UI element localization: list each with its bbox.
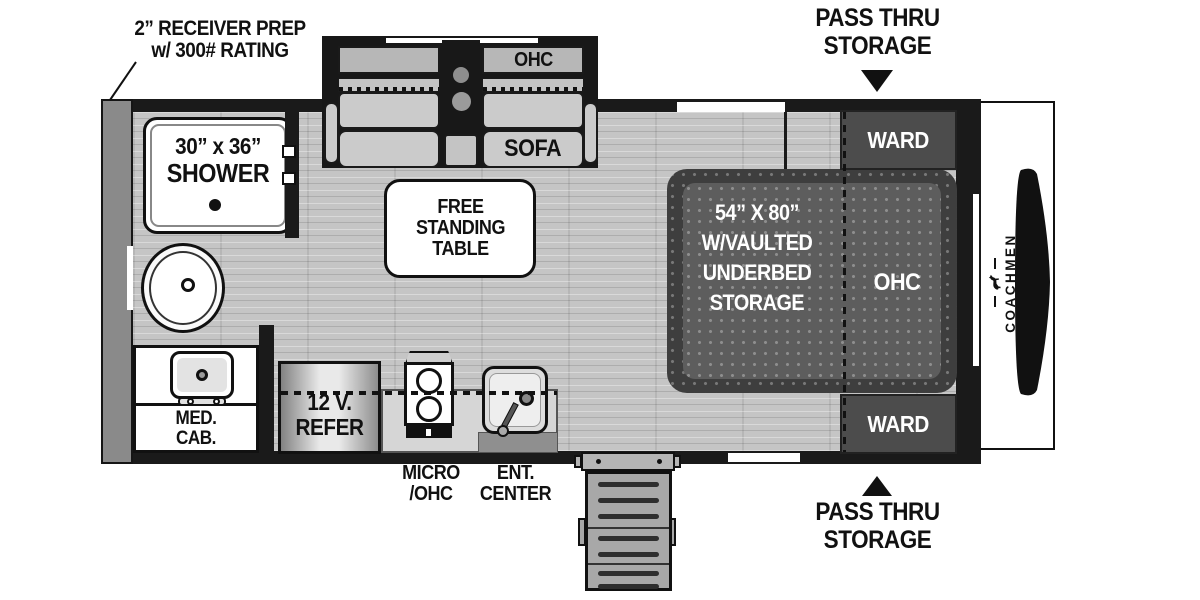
refer-line2: REFER (286, 415, 373, 440)
sofa-back-cushion-right (482, 92, 584, 129)
left-wall-window (127, 246, 133, 310)
sofa-label: SOFA (504, 135, 561, 163)
vanity-faucet-knob-left (187, 398, 194, 405)
logo-dash-left (994, 297, 996, 308)
stove-base-handle (426, 429, 431, 436)
platform-bolt-right (657, 459, 662, 464)
wardrobe-bottom-label: WARD (868, 411, 929, 438)
ohc-cabinet-right: OHC (482, 46, 584, 74)
arrow-down-icon (861, 70, 893, 92)
table-label: FREE STANDING TABLE (415, 197, 504, 260)
step-tread (598, 514, 659, 519)
step-tread (598, 482, 659, 487)
ent-center-base (478, 432, 558, 453)
micro-ohc-callout: MICRO /OHC (391, 463, 472, 505)
kitchen-faucet-knob (497, 425, 509, 437)
overhead-cabinet-dashed-line (281, 391, 557, 395)
ent-line1: ENT. (473, 463, 559, 484)
step-tread (598, 498, 659, 503)
sofa-armrest-right (583, 102, 598, 164)
pass-thru-bottom-line2: STORAGE (803, 526, 952, 554)
pass-thru-top-line1: PASS THRU (803, 4, 952, 32)
vanity-sink-drain (196, 369, 208, 381)
sofa-armrest-left (324, 102, 339, 164)
bed-line2: W/VAULTED (681, 228, 834, 258)
sofa-console (442, 40, 480, 134)
shower-drain (209, 199, 221, 211)
sofa-back-trim-right (482, 78, 584, 92)
bed-line3: UNDERBED (681, 258, 834, 288)
table-line2: STANDING (415, 218, 504, 239)
shower-door-hinge-bottom (282, 172, 296, 185)
shower-label: 30” x 36” SHOWER (155, 133, 281, 187)
bathroom-divider-wall (259, 325, 274, 453)
kitchen-sink (482, 366, 548, 434)
receiver-line1: 2” RECEIVER PREP (130, 18, 310, 40)
pass-thru-bottom-line1: PASS THRU (803, 498, 952, 526)
sofa-seat-cushion-right: SOFA (482, 130, 584, 168)
entry-step-platform (581, 452, 675, 471)
table-line3: TABLE (415, 239, 504, 260)
vanity-faucet-knob-right (213, 398, 220, 405)
bed-label: 54” X 80” W/VAULTED UNDERBED STORAGE (681, 198, 834, 318)
shower-word: SHOWER (155, 160, 281, 187)
step-section-line-1 (588, 527, 669, 529)
pass-thru-bottom-callout: PASS THRU STORAGE (803, 498, 952, 554)
ent-center-callout: ENT. CENTER (473, 463, 559, 505)
sofa-ohc-label: OHC (514, 49, 553, 72)
bedroom-top-window (677, 102, 785, 112)
bed-line4: STORAGE (681, 288, 834, 318)
table-line1: FREE (415, 197, 504, 218)
wardrobe-bottom: WARD (840, 394, 957, 454)
wardrobe-top: WARD (840, 110, 957, 170)
wardrobe-top-label: WARD (868, 127, 929, 154)
pass-thru-top-callout: PASS THRU STORAGE (803, 4, 952, 60)
coachmen-dog-logo-icon (988, 275, 1002, 292)
step-section-line-2 (588, 563, 669, 565)
step-tread (598, 584, 659, 589)
entry-steps (585, 471, 672, 591)
pass-thru-top-line2: STORAGE (803, 32, 952, 60)
toilet-flush-button (181, 278, 195, 292)
vanity-sink (170, 351, 234, 399)
step-tread (598, 536, 659, 541)
bedroom-partition-wall (784, 112, 787, 174)
bedroom-ohc-dashed-line (843, 112, 846, 452)
sofa-seat-cushion-left (338, 130, 440, 168)
platform-bolt-left (596, 459, 601, 464)
step-tread (598, 552, 659, 557)
front-cap-shape (1011, 164, 1055, 400)
ent-line2: CENTER (473, 484, 559, 505)
stove-burner-bottom (416, 396, 442, 422)
ohc-cabinet-left (338, 46, 440, 74)
right-wall-window (973, 194, 979, 366)
console-cupholder-large (452, 92, 471, 111)
stove-base (406, 424, 452, 438)
free-standing-table: FREE STANDING TABLE (384, 179, 536, 278)
bedroom-bottom-window (728, 453, 800, 462)
bed-size: 54” X 80” (681, 198, 834, 228)
bed-ohc-label: OHC (861, 269, 933, 297)
med-cab-line2: CAB. (142, 429, 250, 449)
toilet (141, 243, 225, 333)
logo-dash-right (994, 259, 996, 270)
med-cab-line1: MED. (142, 409, 250, 429)
sofa-back-cushion-left (338, 92, 440, 129)
shower-size: 30” x 36” (155, 133, 281, 160)
receiver-line2: w/ 300# RATING (130, 40, 310, 62)
refer-label: 12 V. REFER (286, 390, 373, 440)
console-cupholder-small (453, 67, 469, 83)
receiver-prep-callout: 2” RECEIVER PREP w/ 300# RATING (130, 18, 310, 62)
shower-door-hinge-top (282, 145, 296, 158)
sofa-back-trim-left (338, 78, 440, 92)
step-tread (598, 571, 659, 576)
sofa-console-footrest (444, 134, 478, 167)
rv-floorplan: COACHMEN OHC SOFA 30” x 36” SHOWER (0, 0, 1200, 600)
arrow-up-icon (862, 476, 892, 496)
med-cab-label: MED. CAB. (142, 409, 250, 449)
micro-line2: /OHC (391, 484, 472, 505)
micro-line1: MICRO (391, 463, 472, 484)
refrigerator: 12 V. REFER (278, 361, 381, 454)
